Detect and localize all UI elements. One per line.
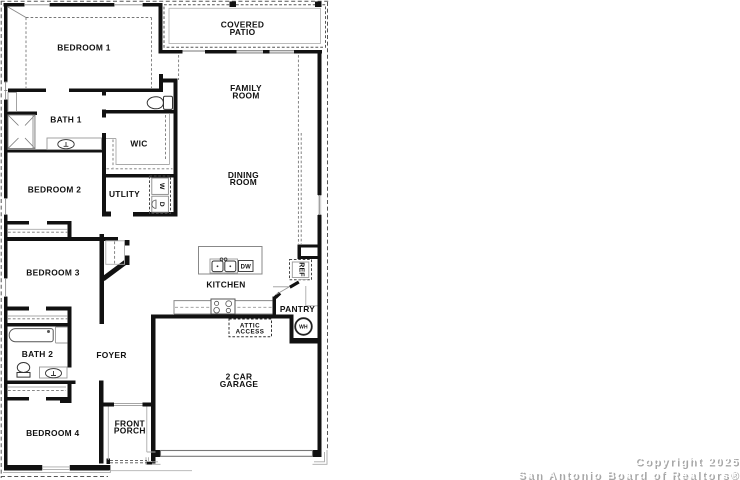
svg-text:BATH 1: BATH 1 — [50, 115, 81, 125]
svg-text:ROOM: ROOM — [230, 177, 257, 187]
svg-text:REF: REF — [298, 262, 305, 277]
svg-text:PORCH: PORCH — [114, 426, 146, 436]
svg-text:DW: DW — [241, 264, 252, 270]
svg-text:ROOM: ROOM — [232, 90, 259, 100]
svg-text:UTLITY: UTLITY — [109, 189, 140, 199]
svg-text:PATIO: PATIO — [230, 27, 256, 37]
svg-text:FOYER: FOYER — [96, 350, 126, 360]
svg-text:WH: WH — [299, 325, 308, 331]
svg-text:Copyright 2025: Copyright 2025 — [635, 456, 740, 468]
svg-text:San Antonio Board of Realtors®: San Antonio Board of Realtors® — [518, 470, 740, 480]
svg-text:W: W — [158, 183, 165, 190]
svg-text:BEDROOM 3: BEDROOM 3 — [26, 267, 79, 277]
svg-text:KITCHEN: KITCHEN — [206, 280, 245, 290]
svg-text:ACCESS: ACCESS — [236, 328, 265, 335]
svg-text:BEDROOM 4: BEDROOM 4 — [26, 428, 79, 438]
svg-text:GARAGE: GARAGE — [220, 379, 259, 389]
svg-text:BEDROOM 1: BEDROOM 1 — [57, 43, 110, 53]
svg-text:PANTRY: PANTRY — [280, 304, 315, 314]
svg-text:BATH 2: BATH 2 — [22, 349, 53, 359]
svg-text:D: D — [158, 202, 165, 207]
svg-text:WIC: WIC — [130, 139, 147, 149]
svg-text:BEDROOM 2: BEDROOM 2 — [28, 184, 81, 194]
